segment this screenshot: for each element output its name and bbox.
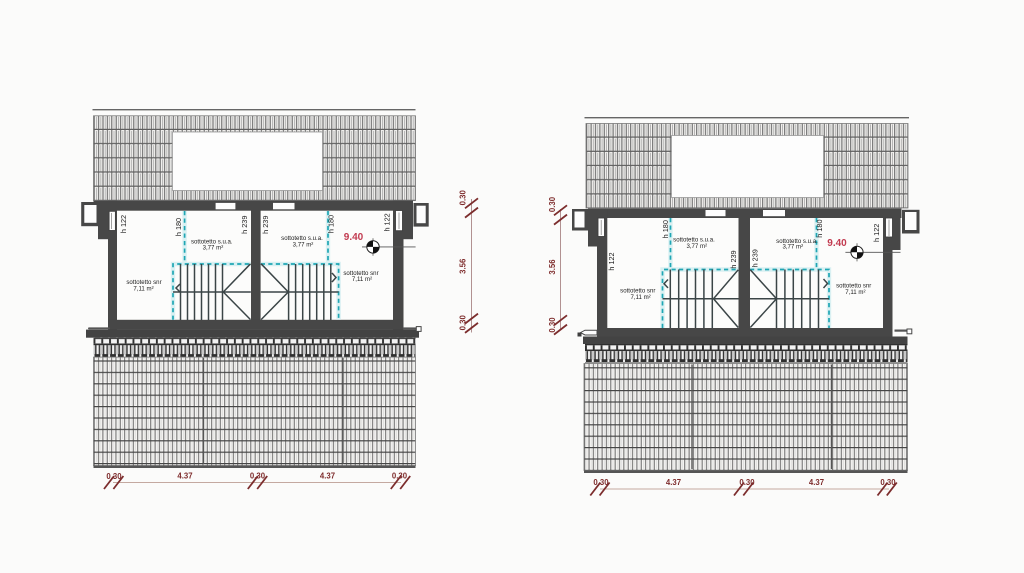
svg-text:0.30: 0.30 — [593, 478, 609, 487]
svg-text:0.30: 0.30 — [548, 317, 557, 333]
svg-text:4.37: 4.37 — [809, 478, 824, 487]
svg-text:h 239: h 239 — [750, 249, 759, 267]
svg-text:h 180: h 180 — [815, 219, 824, 237]
svg-text:0.30: 0.30 — [392, 472, 408, 481]
svg-text:3,77 m²: 3,77 m² — [203, 245, 224, 252]
svg-text:h 180: h 180 — [661, 220, 670, 238]
svg-text:4.37: 4.37 — [666, 478, 681, 487]
svg-text:7,11 m²: 7,11 m² — [352, 276, 372, 283]
svg-text:3.56: 3.56 — [458, 258, 467, 274]
svg-text:7,11 m²: 7,11 m² — [845, 289, 865, 296]
svg-text:7,11 m²: 7,11 m² — [630, 294, 650, 301]
svg-text:0.30: 0.30 — [880, 478, 896, 487]
svg-text:h 122: h 122 — [872, 224, 881, 242]
svg-text:h 122: h 122 — [119, 215, 128, 233]
svg-text:h 122: h 122 — [382, 213, 391, 231]
svg-text:4.37: 4.37 — [320, 472, 335, 481]
svg-text:9.40: 9.40 — [344, 232, 364, 243]
svg-text:3,77 m²: 3,77 m² — [293, 241, 314, 248]
svg-text:0.30: 0.30 — [250, 472, 266, 481]
svg-text:0.30: 0.30 — [548, 196, 557, 212]
svg-text:h 122: h 122 — [607, 252, 616, 270]
svg-text:h 239: h 239 — [261, 216, 270, 234]
svg-text:0.30: 0.30 — [739, 478, 755, 487]
svg-text:0.30: 0.30 — [458, 315, 467, 331]
svg-text:3,77 m²: 3,77 m² — [782, 244, 803, 251]
svg-text:7,11 m²: 7,11 m² — [133, 286, 153, 293]
svg-text:0.30: 0.30 — [106, 472, 122, 481]
svg-text:h 180: h 180 — [326, 215, 335, 233]
svg-text:3.56: 3.56 — [548, 259, 557, 275]
svg-text:3,77 m²: 3,77 m² — [686, 243, 707, 250]
svg-text:9.40: 9.40 — [827, 238, 847, 249]
svg-text:4.37: 4.37 — [177, 472, 192, 481]
svg-text:h 180: h 180 — [174, 218, 183, 236]
svg-text:h 239: h 239 — [729, 250, 738, 268]
svg-text:h 239: h 239 — [240, 216, 249, 234]
svg-text:0.30: 0.30 — [458, 190, 467, 206]
